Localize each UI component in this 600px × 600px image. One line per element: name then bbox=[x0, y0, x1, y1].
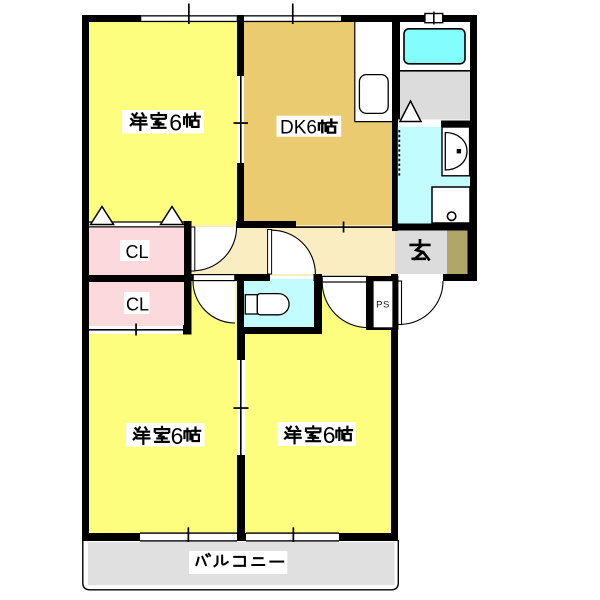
svg-text:CL: CL bbox=[126, 294, 149, 314]
svg-text:DK6: DK6 bbox=[280, 118, 317, 139]
svg-text:CL: CL bbox=[126, 242, 149, 262]
svg-text:PS: PS bbox=[376, 300, 390, 311]
svg-text:6: 6 bbox=[169, 109, 182, 135]
svg-text:6: 6 bbox=[171, 423, 184, 449]
svg-text:6: 6 bbox=[323, 422, 336, 448]
